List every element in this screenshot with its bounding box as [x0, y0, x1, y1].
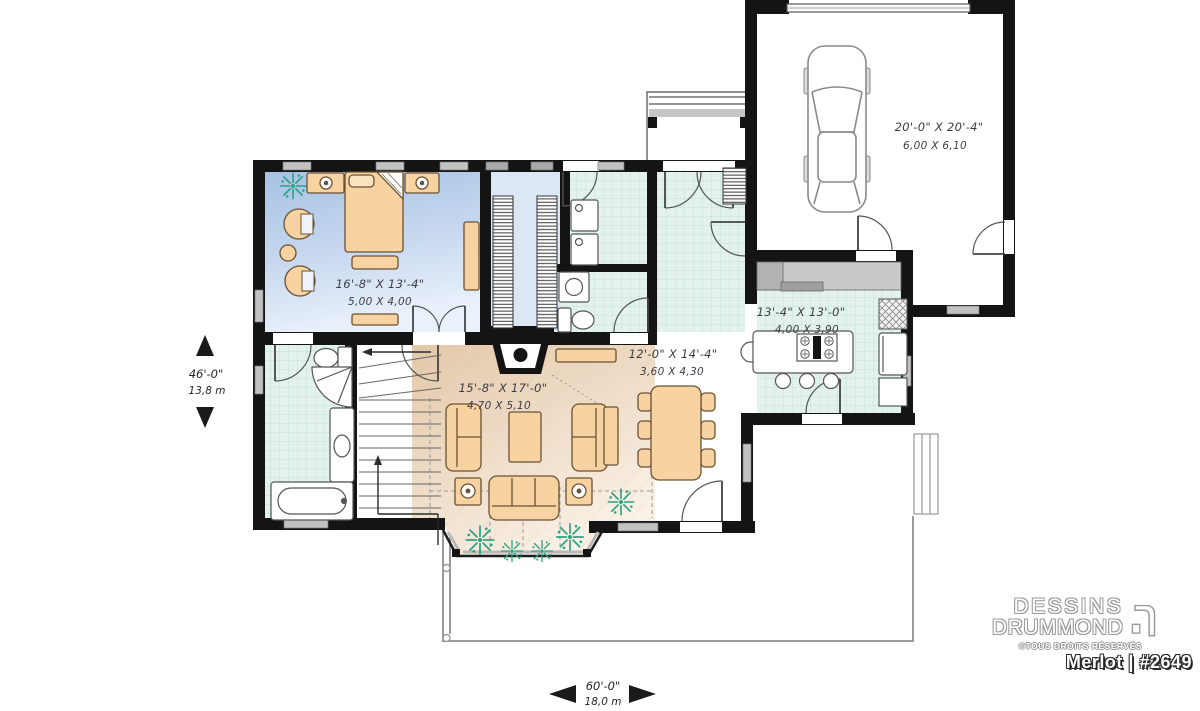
dining-furniture — [638, 386, 715, 480]
dishwasher — [781, 282, 823, 291]
dining-table — [651, 386, 701, 480]
garage-label-metric: 6,00 X 6,10 — [903, 140, 967, 152]
arrow-down-icon — [196, 407, 214, 428]
cabinet — [879, 378, 907, 406]
refrigerator — [879, 333, 907, 375]
brand-name-line1: DESSINS — [992, 596, 1123, 617]
width-metric: 18,0 m — [585, 696, 622, 708]
garage-door — [787, 4, 970, 12]
dining-room-label-imperial: 12'-0" X 14'-4" — [629, 347, 718, 361]
dining-room-label-metric: 3,60 X 4,30 — [640, 366, 704, 378]
chair — [638, 421, 652, 439]
powder-sink — [559, 272, 589, 302]
bedroom-label-metric: 5,00 X 4,00 — [348, 296, 412, 308]
dresser — [464, 222, 479, 290]
dresser — [352, 314, 398, 325]
loveseat — [572, 404, 607, 471]
coffee-table — [509, 412, 541, 462]
bathtub — [271, 482, 353, 520]
brand-logo: DESSINS DRUMMOND — [992, 596, 1156, 646]
arrow-right-icon — [629, 685, 656, 703]
nightstand — [405, 173, 439, 193]
stool — [800, 374, 815, 389]
console-table — [556, 349, 616, 362]
depth-metric: 13,8 m — [189, 385, 226, 397]
nightstand — [307, 173, 344, 193]
washer — [571, 200, 598, 231]
side-table — [455, 478, 481, 505]
plant-icon — [532, 541, 553, 562]
kitchen-label-metric: 4,00 X 3,90 — [775, 324, 839, 336]
plan-name: Merlot | #2649 — [1000, 652, 1192, 673]
drummond-door-icon — [1129, 596, 1156, 646]
entry-closet — [723, 168, 746, 204]
living-room-label-metric: 4,70 X 5,10 — [467, 400, 531, 412]
deck-steps — [914, 434, 938, 514]
closet-door — [531, 162, 553, 170]
console-table — [604, 407, 618, 465]
floor-plan-page: 16'-8" X 13'-4" 5,00 X 4,00 15'-8" X 17'… — [0, 0, 1200, 711]
plant-icon — [502, 541, 523, 562]
stool — [776, 374, 791, 389]
width-imperial: 60'-0" — [586, 679, 621, 693]
width-dimension: 60'-0" 18,0 m — [549, 679, 656, 708]
arrow-up-icon — [196, 335, 214, 356]
arrow-left-icon — [362, 348, 372, 356]
armchair — [284, 209, 314, 239]
plant-icon — [557, 524, 583, 550]
closet-door — [486, 162, 508, 170]
depth-imperial: 46'-0" — [189, 367, 224, 381]
garage-label-imperial: 20'-0" X 20'-4" — [895, 120, 984, 134]
brand-name-line2: DRUMMOND — [992, 617, 1123, 638]
bench — [352, 256, 398, 269]
chair — [701, 421, 715, 439]
chair — [701, 449, 715, 467]
bedroom-label-imperial: 16'-8" X 13'-4" — [336, 277, 425, 291]
kitchen-label-imperial: 13'-4" X 13'-0" — [757, 305, 846, 319]
pantry — [879, 299, 907, 329]
kitchen-island — [741, 331, 853, 373]
plant-icon — [466, 526, 494, 554]
sofa — [489, 476, 559, 520]
side-table — [566, 478, 592, 505]
round-table — [280, 245, 296, 261]
chair — [638, 449, 652, 467]
plant-icon — [608, 489, 633, 514]
car — [804, 46, 870, 212]
powder-fixtures — [558, 272, 594, 332]
bed — [345, 172, 403, 252]
armchair — [285, 266, 315, 296]
chair — [701, 393, 715, 411]
toilet — [314, 347, 352, 369]
dryer — [571, 234, 598, 265]
range — [757, 262, 783, 290]
plant-icon — [280, 173, 305, 198]
living-room-label-imperial: 15'-8" X 17'-0" — [459, 381, 548, 395]
chair — [638, 393, 652, 411]
stool — [824, 374, 839, 389]
depth-dimension: 46'-0" 13,8 m — [189, 335, 226, 428]
vanity-sink — [330, 408, 354, 482]
copyright-note: ©TOUS DROITS RÉSERVÉS — [992, 641, 1142, 651]
loveseat — [446, 404, 481, 471]
arrow-left-icon — [549, 685, 576, 703]
